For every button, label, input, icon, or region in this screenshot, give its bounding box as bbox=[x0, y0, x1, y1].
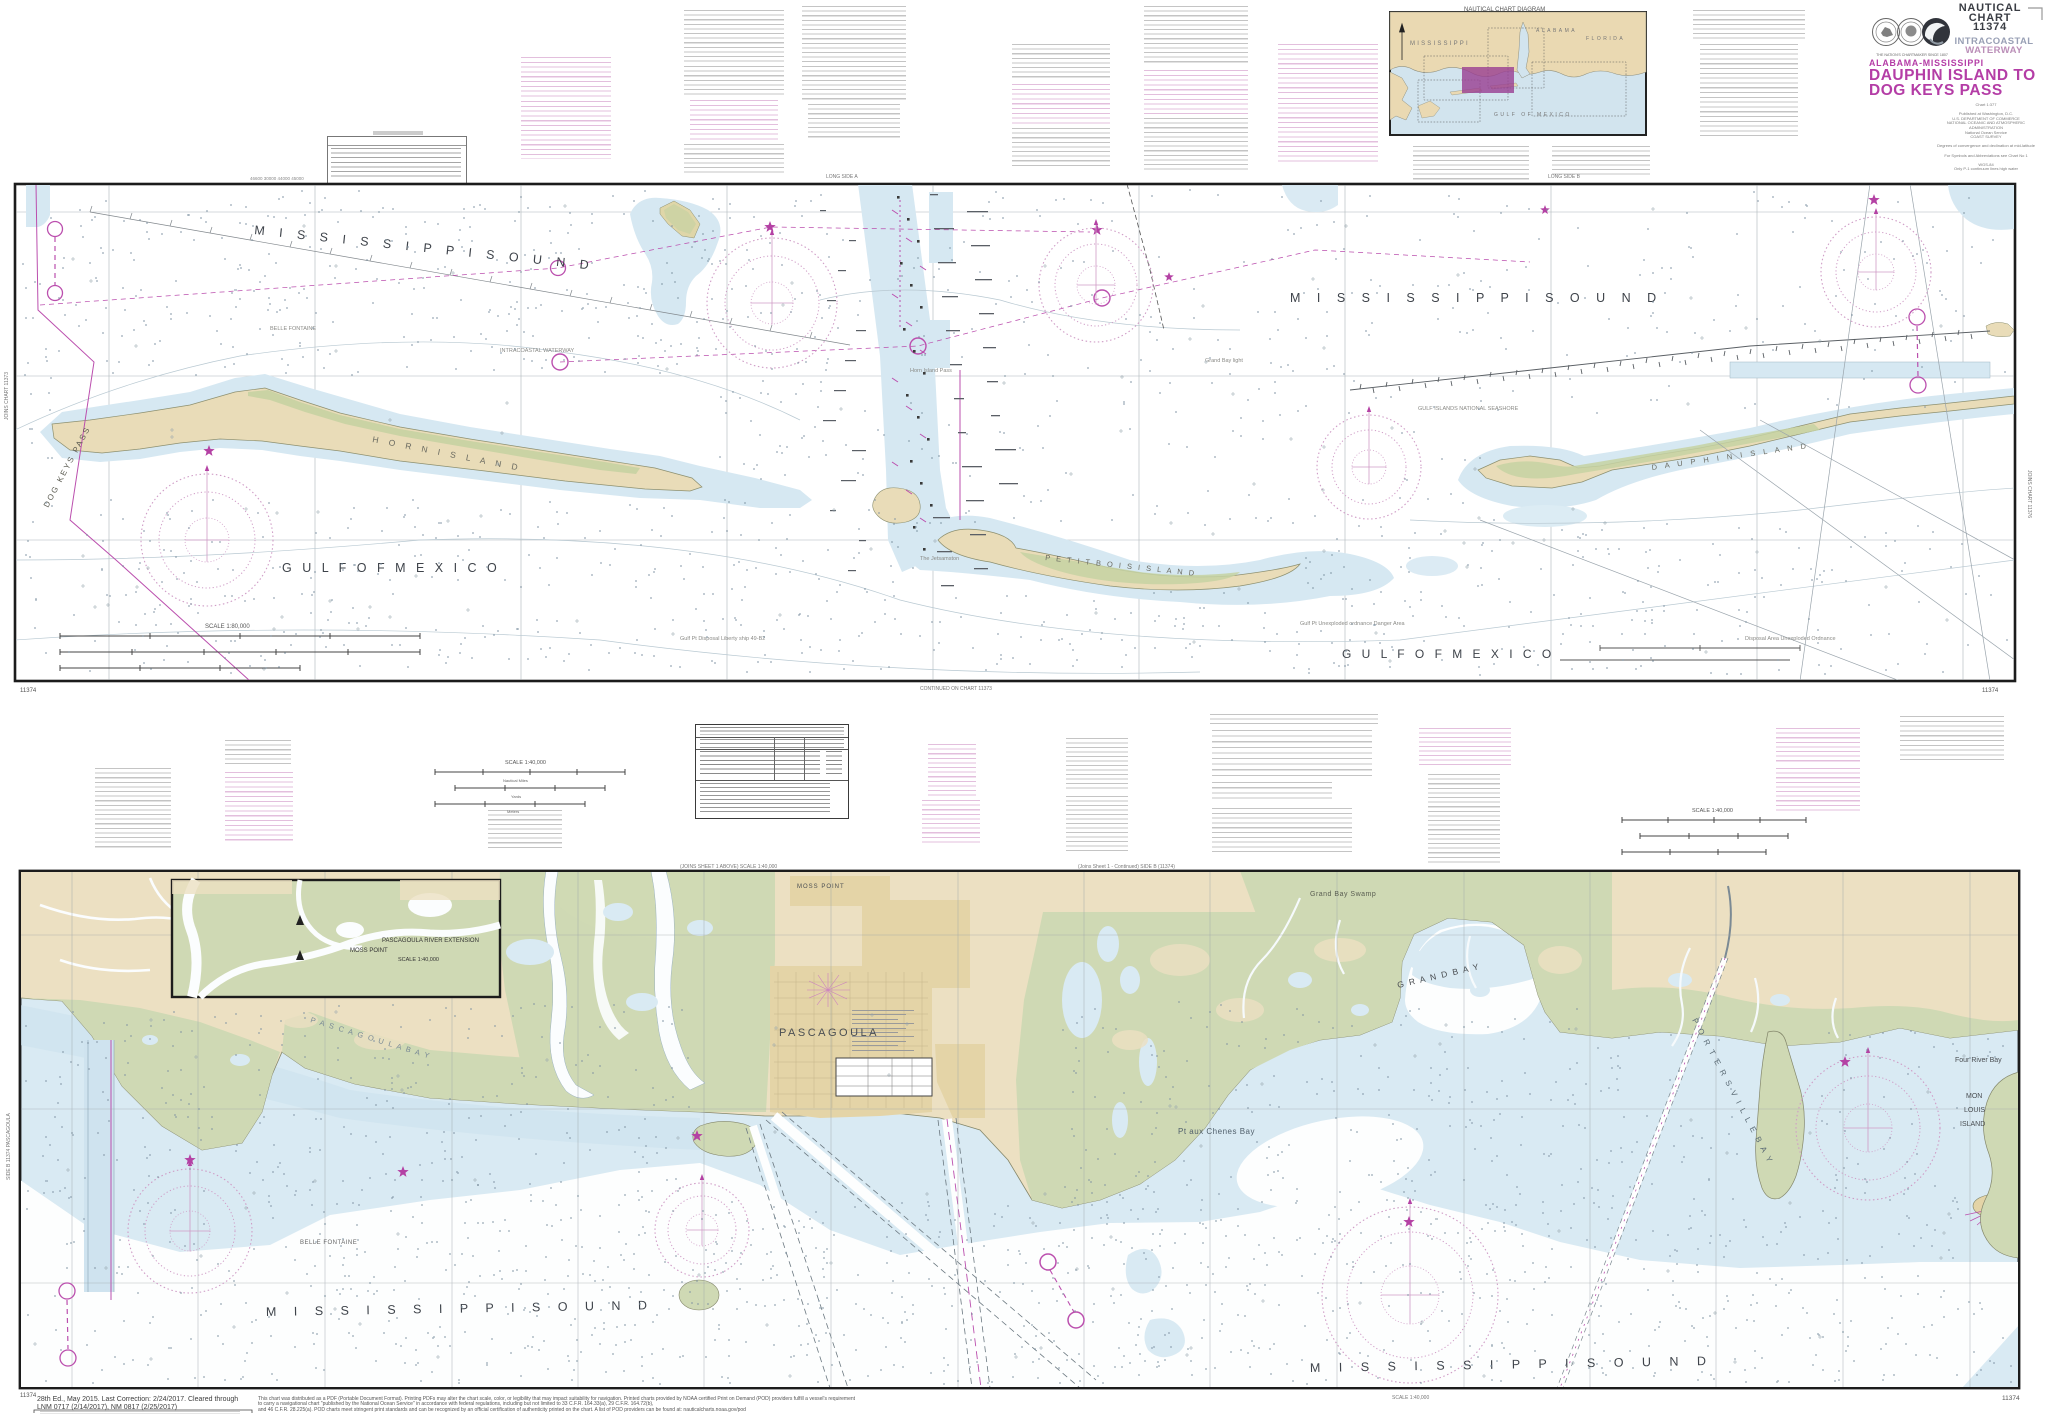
svg-text:SCALE 1:40,000: SCALE 1:40,000 bbox=[1392, 1395, 1429, 1401]
svg-text:Grand Bay Swamp: Grand Bay Swamp bbox=[1310, 891, 1376, 898]
svg-text:Pt aux Chenes Bay: Pt aux Chenes Bay bbox=[1178, 1127, 1255, 1136]
svg-text:Four River Bay: Four River Bay bbox=[1955, 1057, 2002, 1064]
svg-text:SIDE B 11374 PASCAGOULA: SIDE B 11374 PASCAGOULA bbox=[6, 1113, 12, 1180]
svg-text:BELLE FONTAINE: BELLE FONTAINE bbox=[300, 1240, 357, 1246]
svg-text:LOUIS: LOUIS bbox=[1964, 1107, 1985, 1114]
svg-text:PASCAGOULA: PASCAGOULA bbox=[779, 1027, 879, 1039]
svg-text:11374: 11374 bbox=[20, 1393, 37, 1399]
svg-text:11374: 11374 bbox=[2002, 1395, 2020, 1402]
svg-text:ISLAND: ISLAND bbox=[1960, 1121, 1985, 1128]
svg-text:MOSS POINT: MOSS POINT bbox=[797, 884, 845, 890]
svg-text:MOSS POINT: MOSS POINT bbox=[350, 948, 388, 954]
svg-text:(Joins Sheet 1 - Continued) S: (Joins Sheet 1 - Continued) SIDE B (1137… bbox=[1078, 864, 1175, 870]
svg-text:MON: MON bbox=[1966, 1093, 1982, 1100]
svg-text:PASCAGOULA RIVER EXTENSION: PASCAGOULA RIVER EXTENSION bbox=[382, 938, 479, 944]
svg-text:(JOINS SHEET 1 ABOVE) SCALE 1:: (JOINS SHEET 1 ABOVE) SCALE 1:40,000 bbox=[680, 864, 777, 870]
svg-text:SCALE 1:40,000: SCALE 1:40,000 bbox=[398, 957, 439, 963]
